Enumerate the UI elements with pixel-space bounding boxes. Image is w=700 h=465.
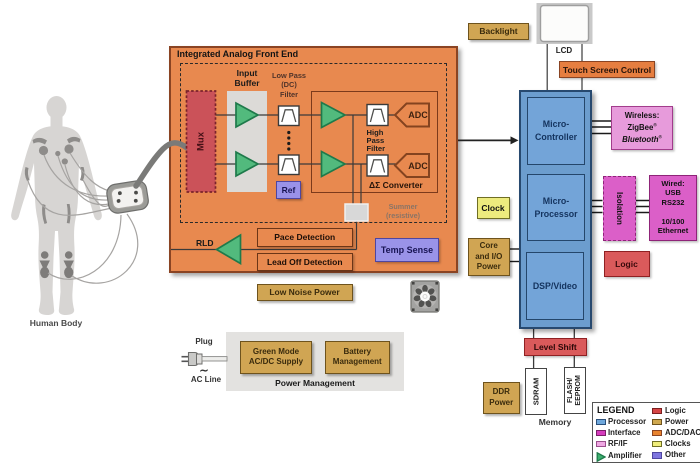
svg-text:Mux: Mux xyxy=(196,131,207,151)
svg-text:ADC: ADC xyxy=(408,110,428,120)
svg-text:ADC: ADC xyxy=(408,161,428,171)
